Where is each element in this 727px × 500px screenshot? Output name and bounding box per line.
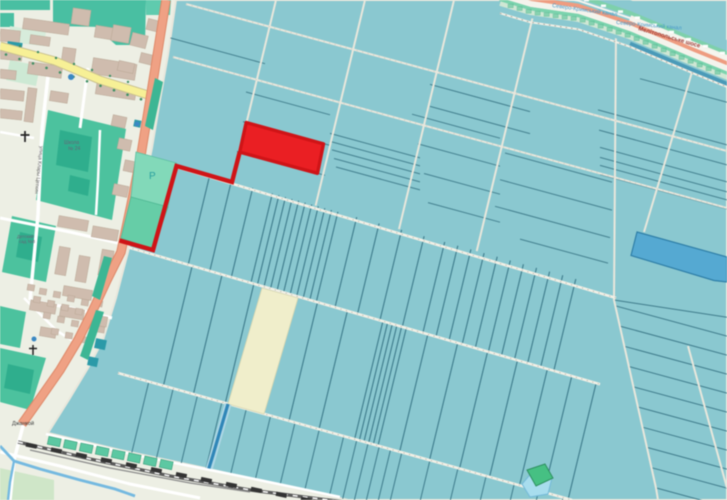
svg-text:№ 24: № 24 [68, 146, 81, 152]
svg-text:сад №8: сад №8 [19, 239, 35, 244]
svg-text:Джанкой: Джанкой [12, 420, 34, 427]
svg-text:P: P [149, 171, 156, 182]
